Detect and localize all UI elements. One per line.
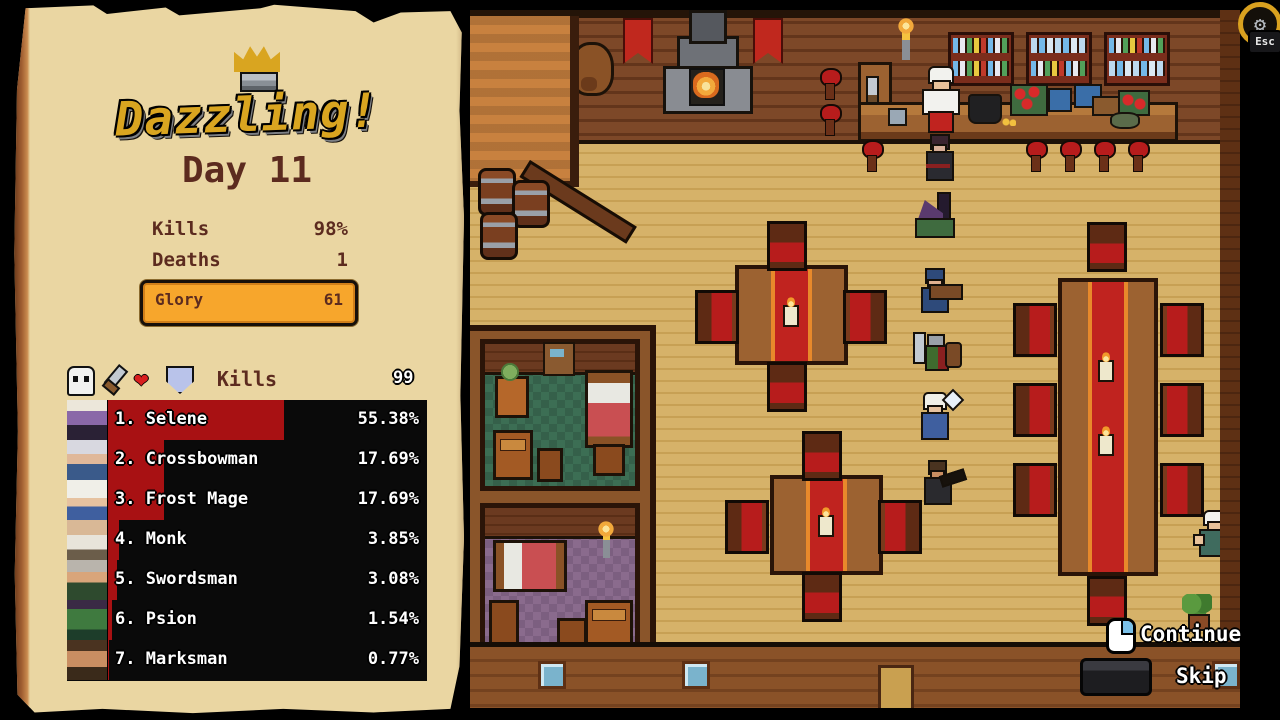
chair [695, 290, 739, 344]
portrait-frost-mage [67, 480, 108, 520]
portrait-marksman [67, 640, 108, 680]
stat-value: 61 [324, 290, 343, 309]
bottle-shelf [1104, 32, 1170, 86]
bottles [953, 38, 1009, 53]
chair [1160, 383, 1204, 437]
green-bedroom [480, 339, 640, 491]
character-swordsman [913, 332, 963, 388]
staircase [470, 16, 579, 187]
rank: 7. [115, 649, 135, 669]
portrait-monk [67, 520, 108, 560]
stat-value: 1 [337, 249, 348, 271]
cooking-pot [968, 94, 1002, 124]
day-title: Day 11 [32, 150, 462, 191]
character-marksman [918, 460, 964, 514]
mug [888, 108, 907, 126]
kill-percent: 1.54% [368, 609, 419, 629]
bartender [920, 66, 960, 142]
leaderboard-row: 5. Swordsman 3.08% [67, 560, 427, 600]
crown-icon [234, 44, 280, 72]
spacebar-key-icon [1080, 658, 1152, 696]
bottles [1109, 38, 1165, 53]
chair [1013, 303, 1057, 357]
portrait-swordsman [67, 560, 108, 600]
bottles [1109, 61, 1165, 76]
dining-table [770, 475, 883, 575]
guest-rooms [470, 325, 656, 656]
plant-stand [495, 376, 529, 418]
leaderboard-row: 2. Crossbowman 17.69% [67, 440, 427, 480]
rank: 4. [115, 529, 135, 549]
character-name: Psion [146, 609, 197, 629]
stat-label: Glory [155, 290, 203, 309]
stat-kills: Kills 98% [144, 218, 352, 244]
bottle-shelf [1026, 32, 1092, 86]
rank: 3. [115, 489, 135, 509]
rank: 5. [115, 569, 135, 589]
candle [783, 305, 799, 327]
leaderboard-row: 7. Marksman 0.77% [67, 640, 427, 680]
window [538, 661, 566, 689]
chair [725, 500, 769, 554]
glory-highlight-box: Glory 61 [140, 280, 358, 326]
summary-panel: Dazzling! Day 11 Kills 98% Deaths 1 Glor… [12, 4, 464, 716]
leaderboard-row: 6. Psion 1.54% [67, 600, 427, 640]
continue-button[interactable]: Continue [1106, 616, 1246, 652]
rank: 2. [115, 449, 135, 469]
window [682, 661, 710, 689]
character-name: Marksman [146, 649, 228, 669]
blue-crate [1048, 88, 1072, 112]
stat-label: Kills [152, 218, 209, 240]
leaderboard-max-value: 99 [393, 368, 413, 388]
bar-stool [820, 68, 838, 100]
stat-label: Deaths [152, 249, 221, 271]
game-logo: Dazzling! [31, 81, 463, 151]
character-name: Frost Mage [146, 489, 248, 509]
chair [843, 290, 887, 344]
chair [1160, 463, 1204, 517]
rank: 1. [115, 409, 135, 429]
fire-flame [693, 72, 719, 98]
kill-percent: 3.08% [368, 569, 419, 589]
bar-stool [1060, 140, 1078, 172]
front-door [878, 665, 914, 708]
chair [802, 431, 842, 481]
kills-leaderboard: 1. Selene 55.38% 2. Crossbowman 17.69% 3… [67, 400, 427, 681]
skip-label: Skip [1176, 664, 1227, 688]
bottles [1031, 38, 1087, 53]
gold-coins [1002, 118, 1016, 126]
cleaver [866, 76, 879, 104]
stool [537, 448, 563, 482]
tavern-scene [470, 10, 1240, 708]
stat-value: 98% [314, 218, 348, 240]
kill-percent: 55.38% [358, 409, 419, 429]
parchment-torn-edge [12, 4, 30, 716]
purple-bedroom [480, 503, 640, 661]
character-name: Swordsman [146, 569, 238, 589]
fireplace-chimney [689, 10, 727, 44]
portrait-crossbowman [67, 440, 108, 480]
right-wall [1220, 10, 1240, 650]
kill-percent: 17.69% [358, 489, 419, 509]
bar-stool [820, 104, 838, 136]
chair [1087, 222, 1127, 272]
leaderboard-row: 1. Selene 55.38% [67, 400, 427, 440]
leaderboard-row: 4. Monk 3.85% [67, 520, 427, 560]
kill-percent: 0.77% [368, 649, 419, 669]
dining-table [735, 265, 848, 365]
bar-stool [1128, 140, 1146, 172]
chair [767, 221, 807, 271]
esc-key-label: Esc [1248, 30, 1280, 54]
barrel [480, 212, 518, 260]
wall-torch [902, 26, 910, 60]
character-selene [922, 134, 956, 184]
chair [1013, 383, 1057, 437]
kill-percent: 17.69% [358, 449, 419, 469]
candle [1098, 434, 1114, 456]
wall-torch [603, 530, 610, 558]
bottles [953, 61, 1009, 76]
dresser [493, 430, 533, 480]
rank: 6. [115, 609, 135, 629]
character-crossbowman [915, 268, 961, 320]
leaderboard-row: 3. Frost Mage 17.69% [67, 480, 427, 520]
character-name: Crossbowman [146, 449, 259, 469]
bottles [1031, 61, 1087, 76]
stat-deaths: Deaths 1 [144, 249, 352, 275]
portrait-psion [67, 600, 108, 640]
character-name: Selene [146, 409, 207, 429]
barrel [478, 168, 516, 216]
skip-button[interactable]: Skip [1080, 658, 1240, 694]
character-name: Monk [146, 529, 187, 549]
chair [802, 572, 842, 622]
bar-stool [1094, 140, 1112, 172]
chair [1013, 463, 1057, 517]
continue-label: Continue [1140, 622, 1241, 646]
character-psion [913, 192, 963, 246]
bed [493, 540, 567, 592]
chair [767, 362, 807, 412]
banquet-table [1058, 278, 1158, 576]
esc-menu-button[interactable]: ⚙ Esc [1236, 0, 1280, 52]
bar-stool [1026, 140, 1044, 172]
room-door [543, 342, 575, 376]
bed [585, 370, 633, 448]
chair [593, 444, 625, 476]
kill-percent: 3.85% [368, 529, 419, 549]
chair [1160, 303, 1204, 357]
tomato-basket [1010, 84, 1048, 116]
bar-stool [862, 140, 880, 172]
mouse-icon [1106, 618, 1136, 654]
portrait-selene [67, 400, 108, 440]
character-frost-mage [915, 392, 963, 448]
chair [878, 500, 922, 554]
candle [1098, 360, 1114, 382]
candle [818, 515, 834, 537]
serving-dish [1110, 112, 1140, 129]
